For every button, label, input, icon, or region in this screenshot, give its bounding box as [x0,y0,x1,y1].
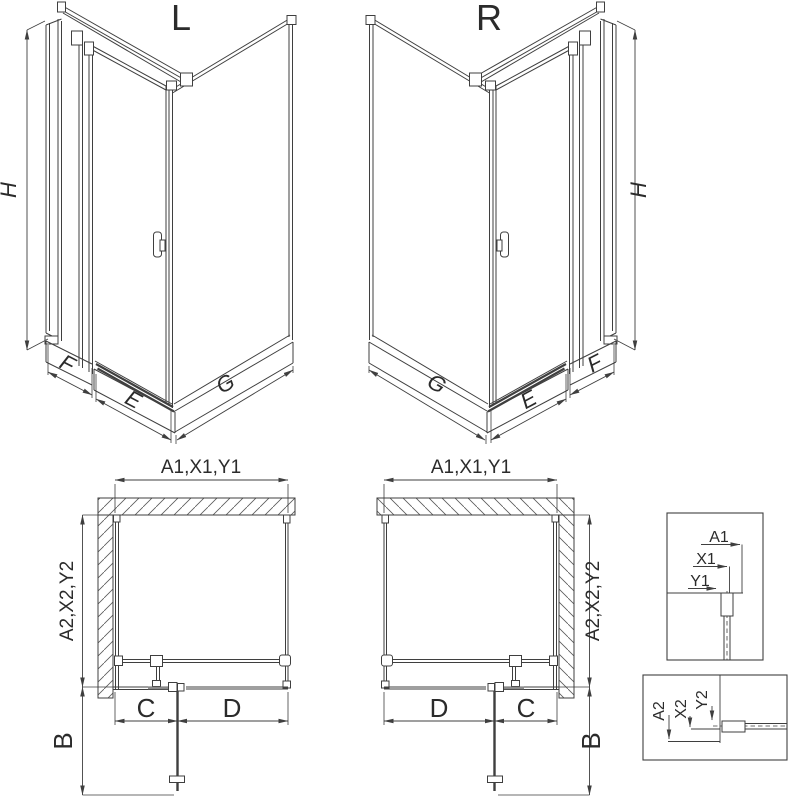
right-plan-view [377,480,590,795]
plan-right-door-proj-label: B [576,732,606,749]
dim-label-side-right: F [583,348,608,377]
dim-label-height-left: H [0,182,21,198]
detail-side-y-label: Y2 [694,690,711,710]
dim-label-door-left: E [121,385,146,414]
plan-left-door-proj-label: B [48,732,78,749]
plan-left-width-label: A1,X1,Y1 [161,457,241,478]
left-3d-view [27,2,296,444]
right-3d-view [366,2,635,444]
plan-left-seg1-label: C [137,693,156,723]
plan-right-seg2-label: C [517,693,536,723]
technical-drawing-page: L R H F E G H F E G A1,X1,Y1 A2,X2,Y2 C … [0,0,800,800]
detail-front-x-label: X1 [696,551,716,568]
dim-label-return-right: G [423,368,450,398]
dim-label-door-right: E [516,385,541,414]
plan-right-width-label: A1,X1,Y1 [431,457,511,478]
variant-label-l: L [171,0,191,38]
dim-label-return-left: G [212,368,239,398]
detail-front-a-label: A1 [709,529,729,546]
detail-front-y-label: Y1 [690,573,710,590]
plan-right-seg1-label: D [430,693,449,723]
dim-label-height-right: H [626,182,651,198]
plan-left-seg2-label: D [223,693,242,723]
detail-box-side-profile: A2 X2 Y2 [643,675,787,760]
plan-right-depth-label: A2,X2,Y2 [583,561,604,641]
detail-side-x-label: X2 [673,699,690,719]
shower-enclosure-diagram: L R H F E G H F E G A1,X1,Y1 A2,X2,Y2 C … [0,0,800,800]
variant-label-r: R [476,0,502,38]
detail-side-a-label: A2 [651,701,668,721]
left-plan-view [83,480,296,795]
detail-box-front-profile: A1 X1 Y1 [667,513,763,660]
plan-left-depth-label: A2,X2,Y2 [57,561,78,641]
dim-label-side-left: F [56,349,81,378]
